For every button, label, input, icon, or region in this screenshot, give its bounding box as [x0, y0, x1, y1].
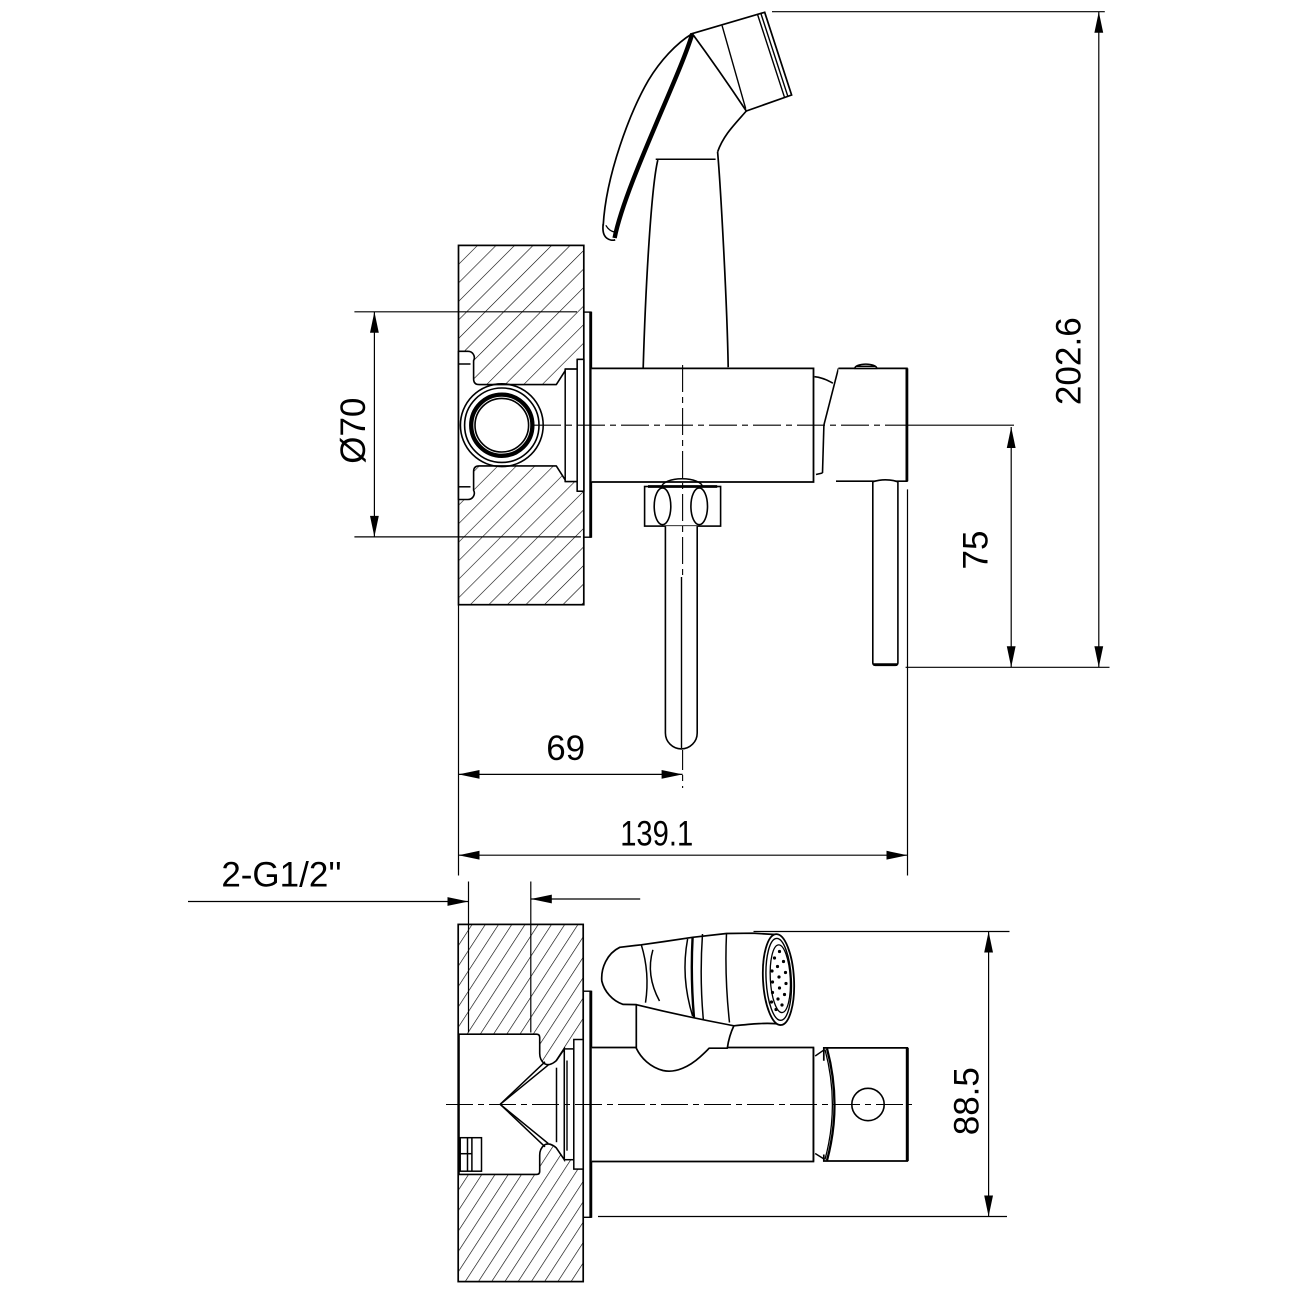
svg-text:75: 75 — [957, 531, 996, 570]
svg-text:Ø70: Ø70 — [334, 398, 373, 464]
svg-text:202.6: 202.6 — [1049, 317, 1088, 405]
svg-text:139.1: 139.1 — [620, 815, 693, 854]
svg-text:2-G1/2'': 2-G1/2'' — [221, 856, 341, 895]
svg-text:69: 69 — [546, 729, 585, 768]
svg-text:88.5: 88.5 — [947, 1067, 986, 1135]
